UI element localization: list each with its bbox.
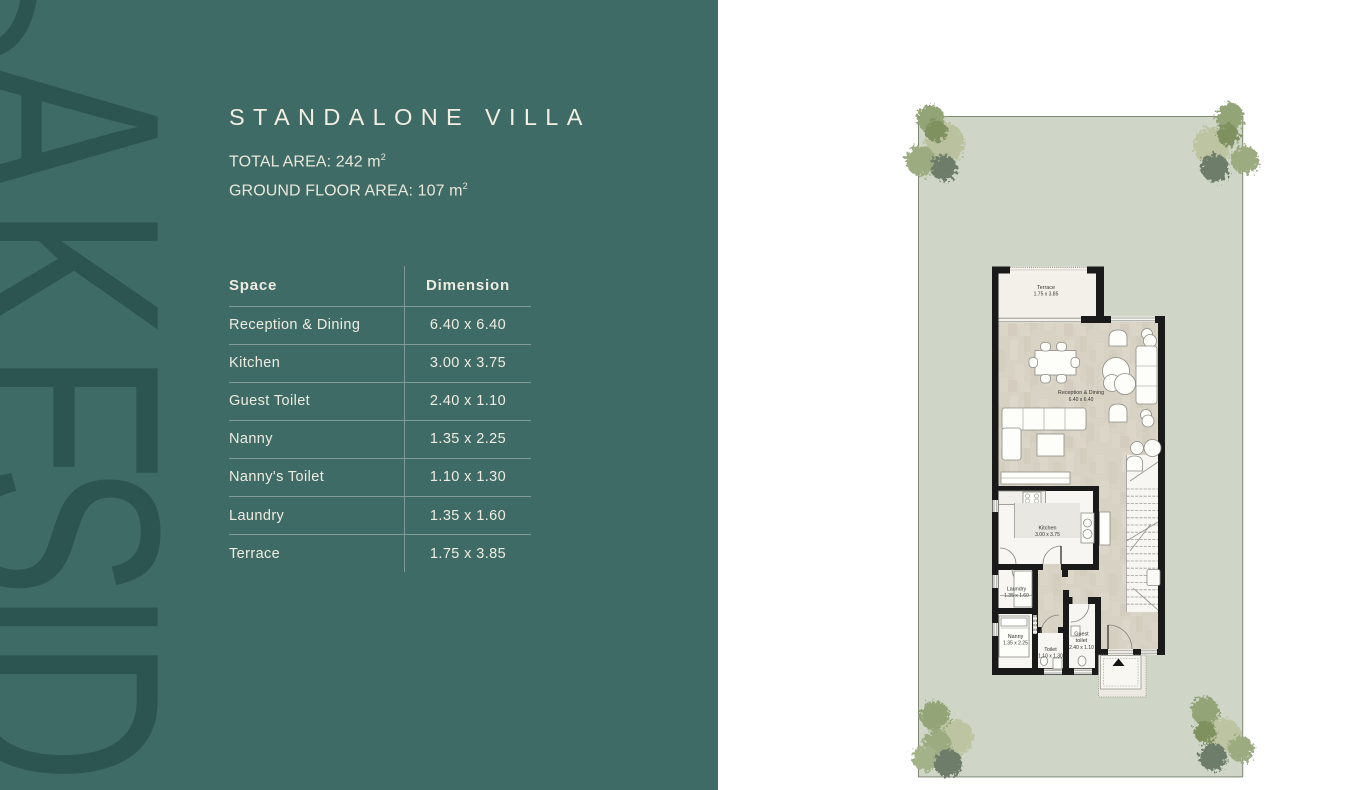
svg-text:2.40 x 1.10: 2.40 x 1.10 bbox=[1069, 645, 1094, 651]
svg-text:1.35 x 1.60: 1.35 x 1.60 bbox=[1004, 593, 1029, 599]
svg-text:3.00 x 3.75: 3.00 x 3.75 bbox=[1035, 532, 1060, 538]
svg-text:Reception & Dining: Reception & Dining bbox=[1058, 390, 1104, 396]
svg-text:Nanny: Nanny bbox=[1008, 634, 1024, 640]
svg-text:Laundry: Laundry bbox=[1007, 587, 1027, 593]
svg-text:1.75 x 3.85: 1.75 x 3.85 bbox=[1034, 292, 1059, 298]
svg-text:1.35 x 2.25: 1.35 x 2.25 bbox=[1003, 641, 1028, 647]
svg-text:Terrace: Terrace bbox=[1037, 285, 1055, 291]
svg-text:toilet: toilet bbox=[1076, 638, 1088, 644]
svg-text:Guest: Guest bbox=[1074, 632, 1089, 638]
svg-text:1.10 x 1.30: 1.10 x 1.30 bbox=[1038, 654, 1063, 660]
svg-text:6.40 x 6.40: 6.40 x 6.40 bbox=[1069, 397, 1094, 403]
svg-text:Toilet: Toilet bbox=[1044, 647, 1057, 653]
svg-text:LAKESIDE: LAKESIDE bbox=[0, 0, 218, 790]
svg-text:Kitchen: Kitchen bbox=[1039, 526, 1057, 532]
